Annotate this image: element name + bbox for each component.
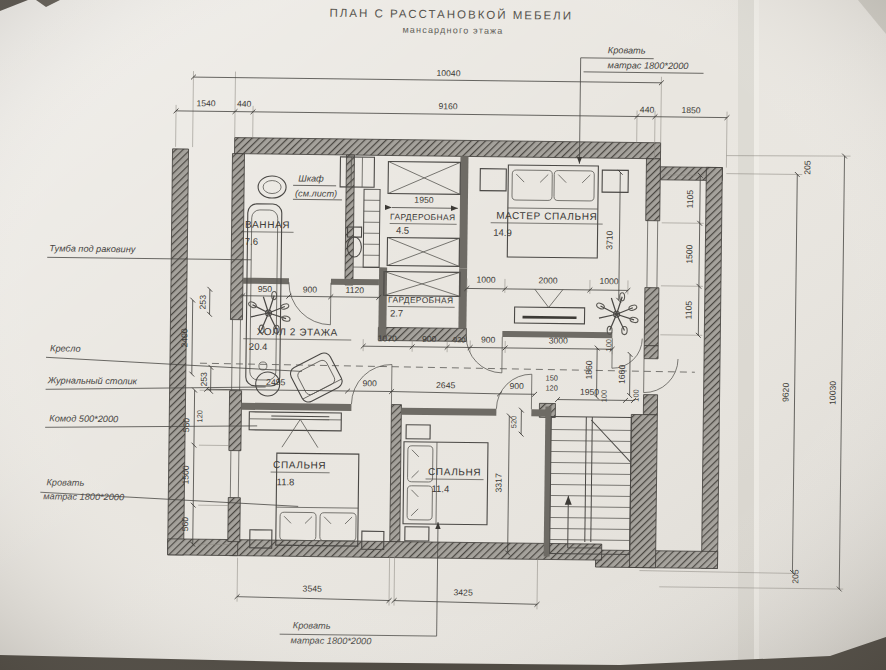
plan-canvas: 10040 1540 440 9160 440 1850 950 900 112… <box>0 0 886 670</box>
floor-plan-photo: 10040 1540 440 9160 440 1850 950 900 112… <box>0 0 886 670</box>
vignette <box>0 0 886 670</box>
